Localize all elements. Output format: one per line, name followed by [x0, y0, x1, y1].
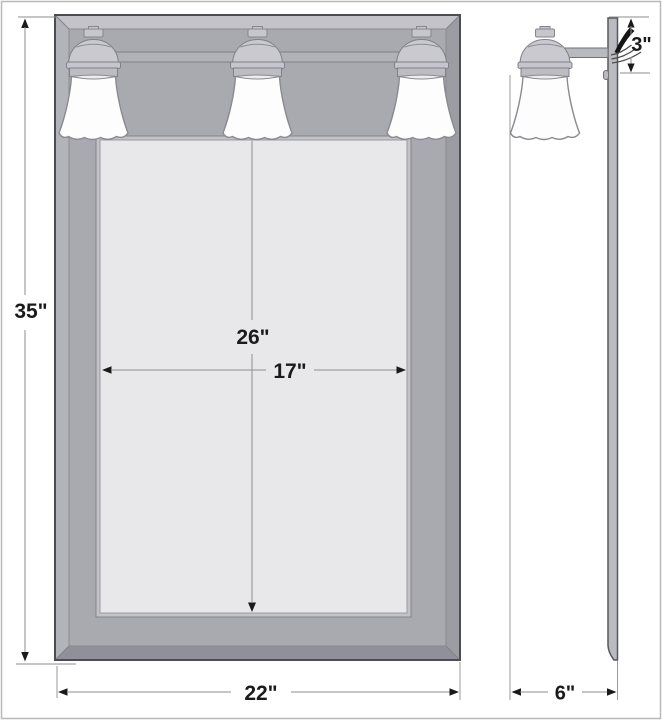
- front-view: 26" 17": [55, 15, 460, 660]
- frame-bevel-bottom: [56, 646, 459, 659]
- drawing-canvas: 26" 17" 35" 22": [0, 0, 662, 720]
- cabinet-side-panel: [608, 18, 618, 660]
- dim-label-mirror-width: 17": [273, 360, 306, 383]
- dim-label-overall-width: 22": [244, 682, 277, 705]
- mirror-glass: [100, 140, 407, 613]
- dim-label-side-depth: 6": [555, 683, 576, 705]
- dim-label-light-arm-offset: 3": [631, 34, 652, 56]
- mounting-knob: [604, 71, 609, 80]
- light-mount-arm: [563, 48, 608, 58]
- dim-label-overall-height: 35": [14, 300, 47, 323]
- dim-label-mirror-height: 26": [236, 326, 269, 349]
- dimension-drawing: 26" 17" 35" 22": [0, 0, 662, 720]
